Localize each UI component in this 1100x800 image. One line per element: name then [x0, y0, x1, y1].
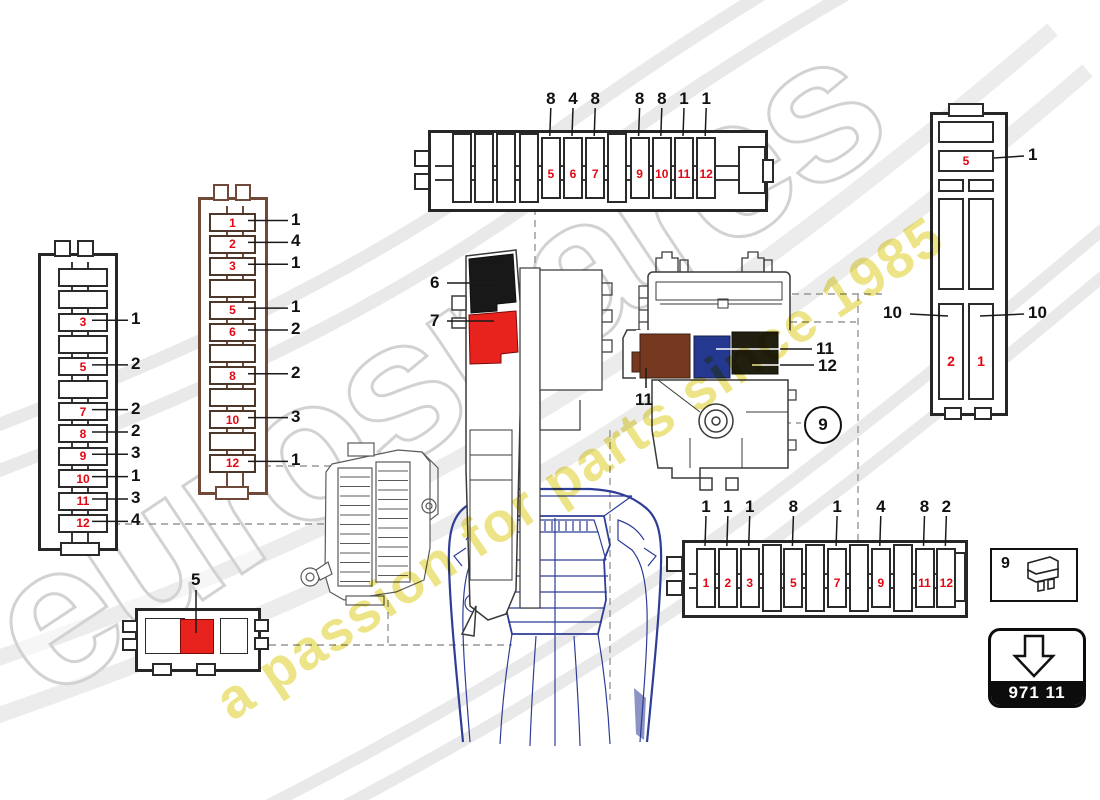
inner-cell: [220, 618, 248, 654]
fuse-slot: [893, 544, 913, 612]
part-number-badge[interactable]: 971 11: [988, 628, 1086, 708]
fuse-slot: 2: [209, 235, 256, 254]
fuse-slot: [474, 133, 494, 203]
fuse-slot: 1: [696, 548, 716, 608]
fuse-slot: 10: [58, 469, 108, 488]
fuse-slot: [762, 544, 782, 612]
fuse-slot: [58, 290, 108, 309]
fuse-strip-bottom: 1235791112: [682, 540, 968, 618]
slot-number: 5: [60, 360, 106, 374]
connector-tab: [77, 240, 94, 257]
fuse-slot: 5: [209, 301, 256, 320]
slot-number: 2: [211, 237, 254, 251]
mount-foot: [974, 407, 992, 420]
fuse-slot: 12: [696, 137, 716, 199]
fuse-box-inner: 1235681012: [198, 197, 268, 495]
slot-number: 12: [698, 167, 714, 181]
fuse-slot: 3: [58, 313, 108, 332]
divider-cell: [968, 179, 994, 192]
inner-cell: [145, 618, 185, 654]
fuse-slot: 3: [209, 257, 256, 276]
slot-number: 2: [940, 354, 962, 368]
slot-number: 7: [829, 576, 845, 590]
fuse-slot: 11: [915, 548, 935, 608]
fuse-slot: [58, 335, 108, 354]
fuse-slot: 7: [827, 548, 847, 608]
fuse-slot: 12: [58, 514, 108, 533]
relay-slot: 1: [968, 303, 994, 400]
connector-tab: [235, 184, 251, 201]
fuse-box-left: 35789101112: [38, 253, 118, 551]
fuse-slot: [938, 121, 994, 143]
down-arrow-icon: [991, 632, 1077, 680]
fuse-slot: 5: [938, 150, 994, 172]
slot-number: 12: [60, 516, 106, 530]
slot-number: 10: [211, 413, 254, 427]
part-number-text: 971 11: [991, 681, 1083, 705]
connector-tab: [54, 240, 71, 257]
fuse-slot: 8: [209, 366, 256, 385]
fuse-slot: [209, 388, 256, 407]
legend-number: 9: [1001, 555, 1010, 573]
fuse-slot: 7: [585, 137, 605, 199]
slot-number: 12: [211, 456, 254, 470]
fuse-slot: [849, 544, 869, 612]
connector-tab: [762, 159, 774, 183]
connector-tab: [414, 150, 430, 167]
fuse-slot: 3: [740, 548, 760, 608]
fuse-slot: 5: [58, 357, 108, 376]
legend-fuse-box[interactable]: 9: [990, 548, 1078, 602]
slot-number: 9: [873, 576, 889, 590]
fuse-slot: 11: [674, 137, 694, 199]
slot-number: 3: [60, 315, 106, 329]
fuse-slot: [607, 133, 627, 203]
connector-tab: [122, 620, 138, 633]
slot-number: 11: [917, 576, 933, 590]
slot-number: 9: [632, 167, 648, 181]
components-layer: 5679101112 1235791112 35789101112 123568…: [0, 0, 1100, 800]
slot-number: 9: [60, 449, 106, 463]
fuse-slot: [496, 133, 516, 203]
slot-number: 1: [698, 576, 714, 590]
fuse-slot: [58, 268, 108, 287]
fuse-slot: 12: [936, 548, 956, 608]
slot-number: 5: [543, 167, 559, 181]
mount-foot: [215, 486, 249, 500]
slot-number: 5: [211, 303, 254, 317]
fuse-slot: 1: [209, 213, 256, 232]
fuse-slot: 9: [630, 137, 650, 199]
slot-number: 5: [940, 154, 992, 168]
fuse-box-right: 5 2 1: [930, 112, 1008, 416]
fuse-slot: 7: [58, 402, 108, 421]
slot-number: 3: [742, 576, 758, 590]
fuse-slot: [805, 544, 825, 612]
mount-foot: [60, 542, 100, 556]
fuse-slot: 10: [652, 137, 672, 199]
parts-diagram-canvas: eurospares: [0, 0, 1100, 800]
slot-number: 2: [720, 576, 736, 590]
connector-tab: [122, 638, 138, 651]
slot-number: 1: [970, 354, 992, 368]
connector-tab: [254, 619, 269, 632]
fuse-slot: 11: [58, 492, 108, 511]
relay-slot: [938, 198, 964, 290]
connector-tab: [948, 103, 984, 117]
connector-tab: [213, 184, 229, 201]
relay-slot: 2: [938, 303, 964, 400]
connector-tab: [666, 580, 683, 596]
fuse-slot: [209, 432, 256, 451]
mount-foot: [944, 407, 962, 420]
fuse-slot: 6: [563, 137, 583, 199]
connector-tab: [254, 637, 269, 650]
slot-number: 8: [60, 427, 106, 441]
slot-number: 1: [211, 216, 254, 230]
circled-callout-9[interactable]: 9: [804, 406, 842, 444]
slot-number: 3: [211, 259, 254, 273]
slot-number: 6: [565, 167, 581, 181]
fuse-slot: 5: [541, 137, 561, 199]
slot-number: 7: [60, 405, 106, 419]
fuse-slot: [452, 133, 472, 203]
fuse-slot: [58, 380, 108, 399]
slot-number: 5: [785, 576, 801, 590]
fuse-strip-top: 5679101112: [428, 130, 768, 212]
fuse-slot: 2: [718, 548, 738, 608]
mount-foot: [196, 663, 216, 676]
slot-number: 6: [211, 325, 254, 339]
fuse-slot: [209, 344, 256, 363]
fuse-slot: [519, 133, 539, 203]
mount-foot: [152, 663, 172, 676]
fuse-slot: 6: [209, 323, 256, 342]
blade-fuse-icon: [1020, 553, 1066, 595]
slot-number: 10: [654, 167, 670, 181]
fuse-slot: 9: [58, 447, 108, 466]
fuse-slot: 5: [783, 548, 803, 608]
slot-number: 11: [60, 494, 106, 508]
fuse-slot: [209, 279, 256, 298]
single-fuse-box: [135, 608, 261, 672]
fuse-slot: 10: [209, 410, 256, 429]
slot-number: 8: [211, 369, 254, 383]
fuse-slot: 12: [209, 454, 256, 473]
slot-number: 11: [676, 167, 692, 181]
slot-number: 12: [938, 576, 954, 590]
connector-tab: [666, 556, 683, 572]
relay-slot: [968, 198, 994, 290]
divider-cell: [938, 179, 964, 192]
fuse-slot: 9: [871, 548, 891, 608]
slot-number: 7: [587, 167, 603, 181]
slot-number: 10: [60, 472, 106, 486]
connector-tab: [414, 173, 430, 190]
fuse-red-block: [180, 619, 214, 654]
fuse-slot: 8: [58, 424, 108, 443]
